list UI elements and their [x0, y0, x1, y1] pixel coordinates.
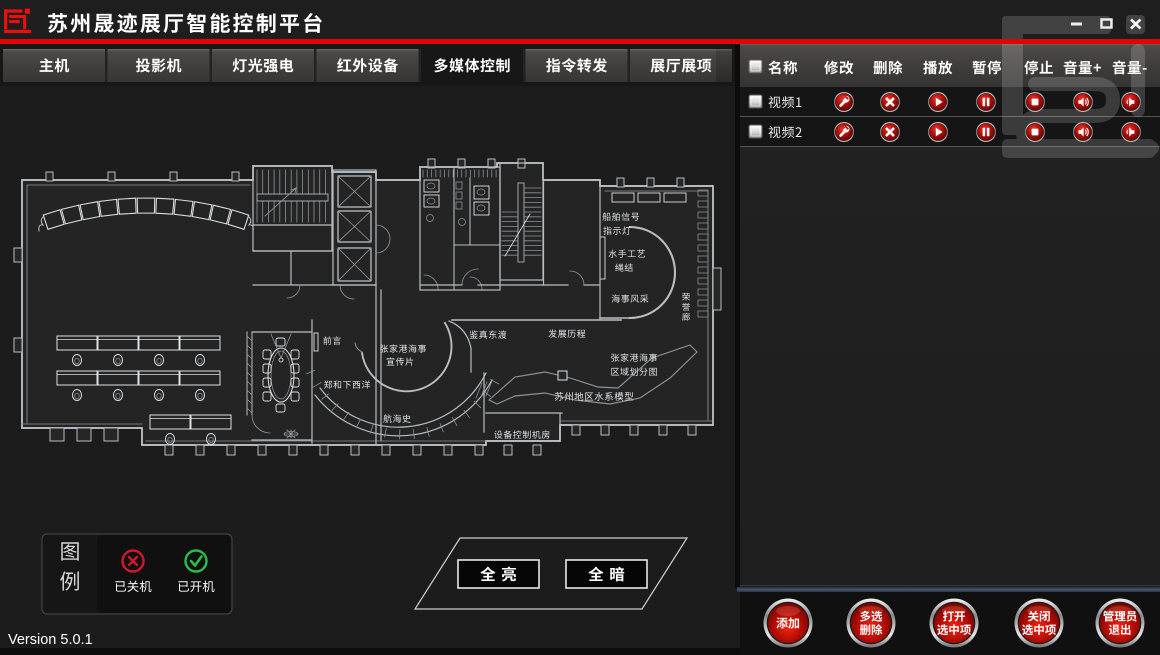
- svg-text:Version 5.0.1: Version 5.0.1: [8, 632, 93, 648]
